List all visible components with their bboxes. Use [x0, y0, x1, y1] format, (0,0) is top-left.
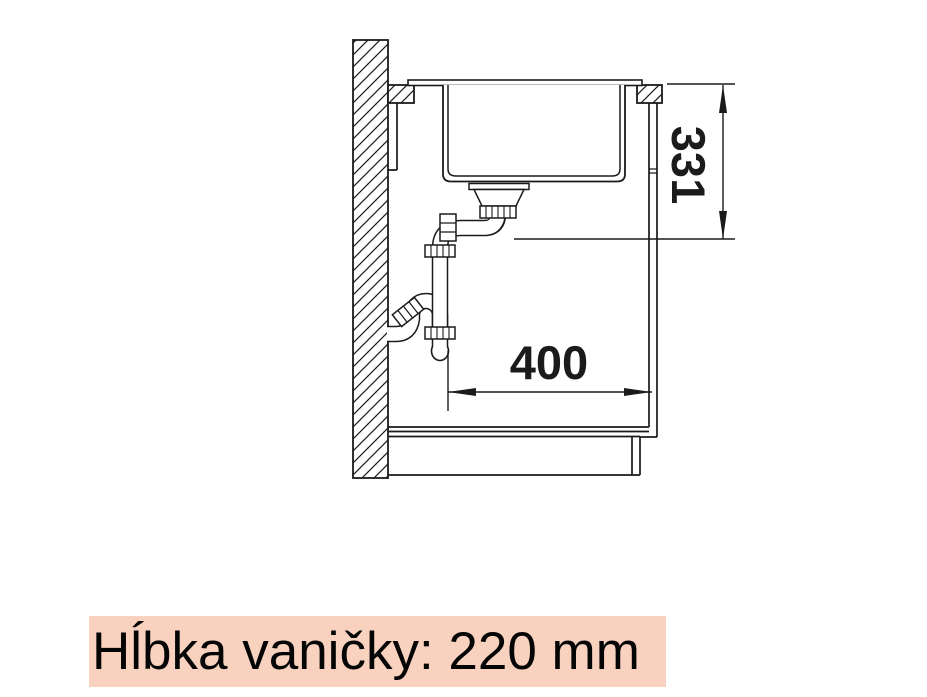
dimension-331-arrow-up	[719, 85, 727, 113]
elbow-nut	[440, 214, 456, 241]
sink	[408, 80, 642, 182]
drain-plumbing	[387, 184, 529, 361]
dimension-331-arrow-down	[719, 211, 727, 239]
sink-section-drawing: 331 400	[0, 0, 927, 697]
cabinet-bottom-shelf	[388, 427, 649, 432]
dimension-331-label: 331	[662, 126, 715, 204]
cabinet-back-rail	[388, 103, 397, 170]
pipe-nut-upper	[425, 245, 455, 257]
cabinet-side-panel	[649, 103, 657, 437]
caption-highlight: Hĺbka vaničky: 220 mm	[89, 616, 666, 687]
countertop-left	[388, 85, 414, 103]
dimension-400-arrow-right	[624, 388, 652, 396]
dimension-400-arrow-left	[448, 388, 476, 396]
strainer	[469, 184, 529, 219]
wall-section	[353, 40, 388, 478]
screenshot-root: 331 400 Hĺbka vaničky: 220 mm	[0, 0, 927, 697]
sink-bowl-outer	[443, 85, 625, 182]
sink-rim	[408, 80, 642, 86]
caption-text: Hĺbka vaničky: 220 mm	[92, 622, 640, 681]
countertop-right	[637, 85, 662, 103]
cabinet-side-joint	[649, 169, 657, 173]
cabinet-plinth	[388, 437, 657, 476]
dimension-400-label: 400	[510, 336, 588, 389]
pipe-nut-lower	[425, 327, 455, 339]
dimension-400: 400	[448, 336, 652, 411]
